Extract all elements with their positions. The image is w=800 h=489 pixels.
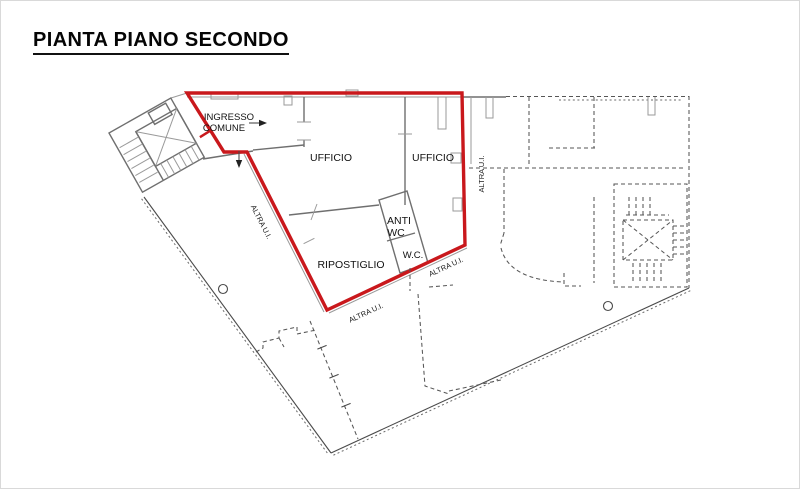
column-circle (604, 302, 613, 311)
floor-plan-page: PIANTA PIANO SECONDO (0, 0, 800, 489)
label-altra-ui-right: ALTRA U.I. (477, 156, 486, 193)
door-swing-arc (501, 248, 564, 282)
lower-unit-partitions (219, 268, 613, 439)
label-ingresso-comune: COMUNE (203, 123, 245, 134)
floor-plan-drawing: INGRESSO COMUNE UFFICIO UFFICIO ANTI WC … (1, 1, 799, 488)
label-altra-ui-left: ALTRA U.I. (249, 203, 274, 240)
label-anti-wc: ANTI (387, 215, 411, 227)
room-labels: INGRESSO COMUNE UFFICIO UFFICIO ANTI WC … (203, 112, 486, 325)
label-ufficio-left: UFFICIO (310, 152, 352, 164)
label-ripostiglio: RIPOSTIGLIO (317, 259, 384, 271)
label-ingresso-comune: INGRESSO (204, 112, 254, 123)
label-ufficio-right: UFFICIO (412, 152, 454, 164)
unit-interior-walls (211, 90, 655, 273)
label-anti-wc: WC (387, 227, 405, 239)
building-outline (142, 93, 691, 456)
label-wc: W.C. (403, 250, 424, 261)
other-unit-partitions (469, 97, 684, 286)
column-circle (219, 285, 228, 294)
right-stairwell (614, 184, 687, 287)
label-altra-ui-bottom: ALTRA U.I. (347, 301, 384, 325)
